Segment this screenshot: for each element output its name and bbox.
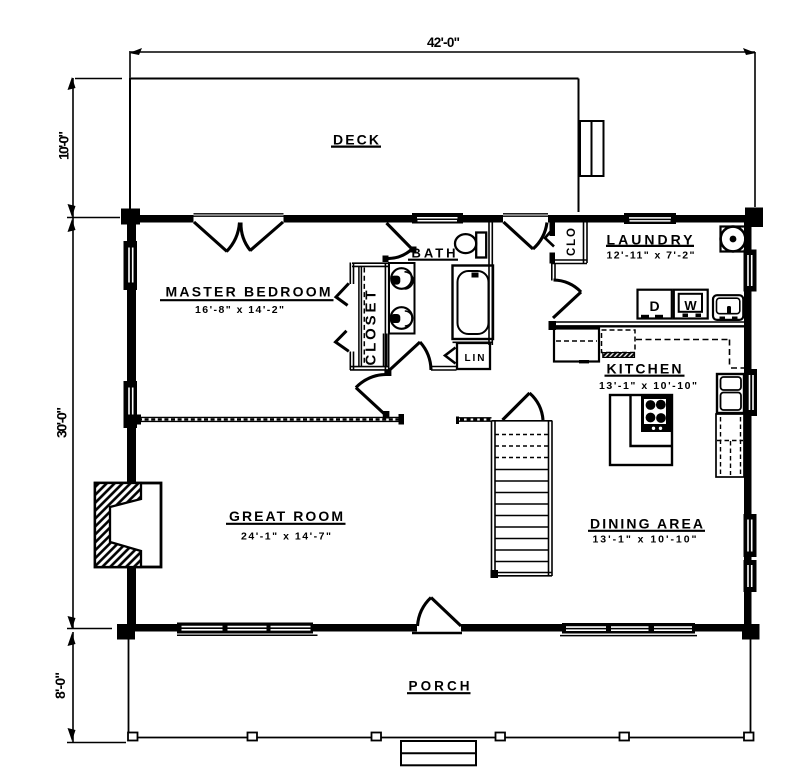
svg-text:10'-0": 10'-0" <box>56 131 72 160</box>
svg-text:CLO: CLO <box>566 228 578 256</box>
svg-text:8'-0": 8'-0" <box>52 672 68 699</box>
svg-text:DECK: DECK <box>333 131 379 147</box>
svg-text:LIN: LIN <box>465 353 485 364</box>
svg-text:D: D <box>649 298 659 314</box>
svg-text:13'-1" x 10'-10": 13'-1" x 10'-10" <box>593 534 697 546</box>
svg-text:42'-0": 42'-0" <box>427 35 460 50</box>
svg-text:30'-0": 30'-0" <box>54 407 70 438</box>
svg-text:13'-1" x 10'-10": 13'-1" x 10'-10" <box>599 380 697 392</box>
svg-text:W: W <box>684 298 697 313</box>
